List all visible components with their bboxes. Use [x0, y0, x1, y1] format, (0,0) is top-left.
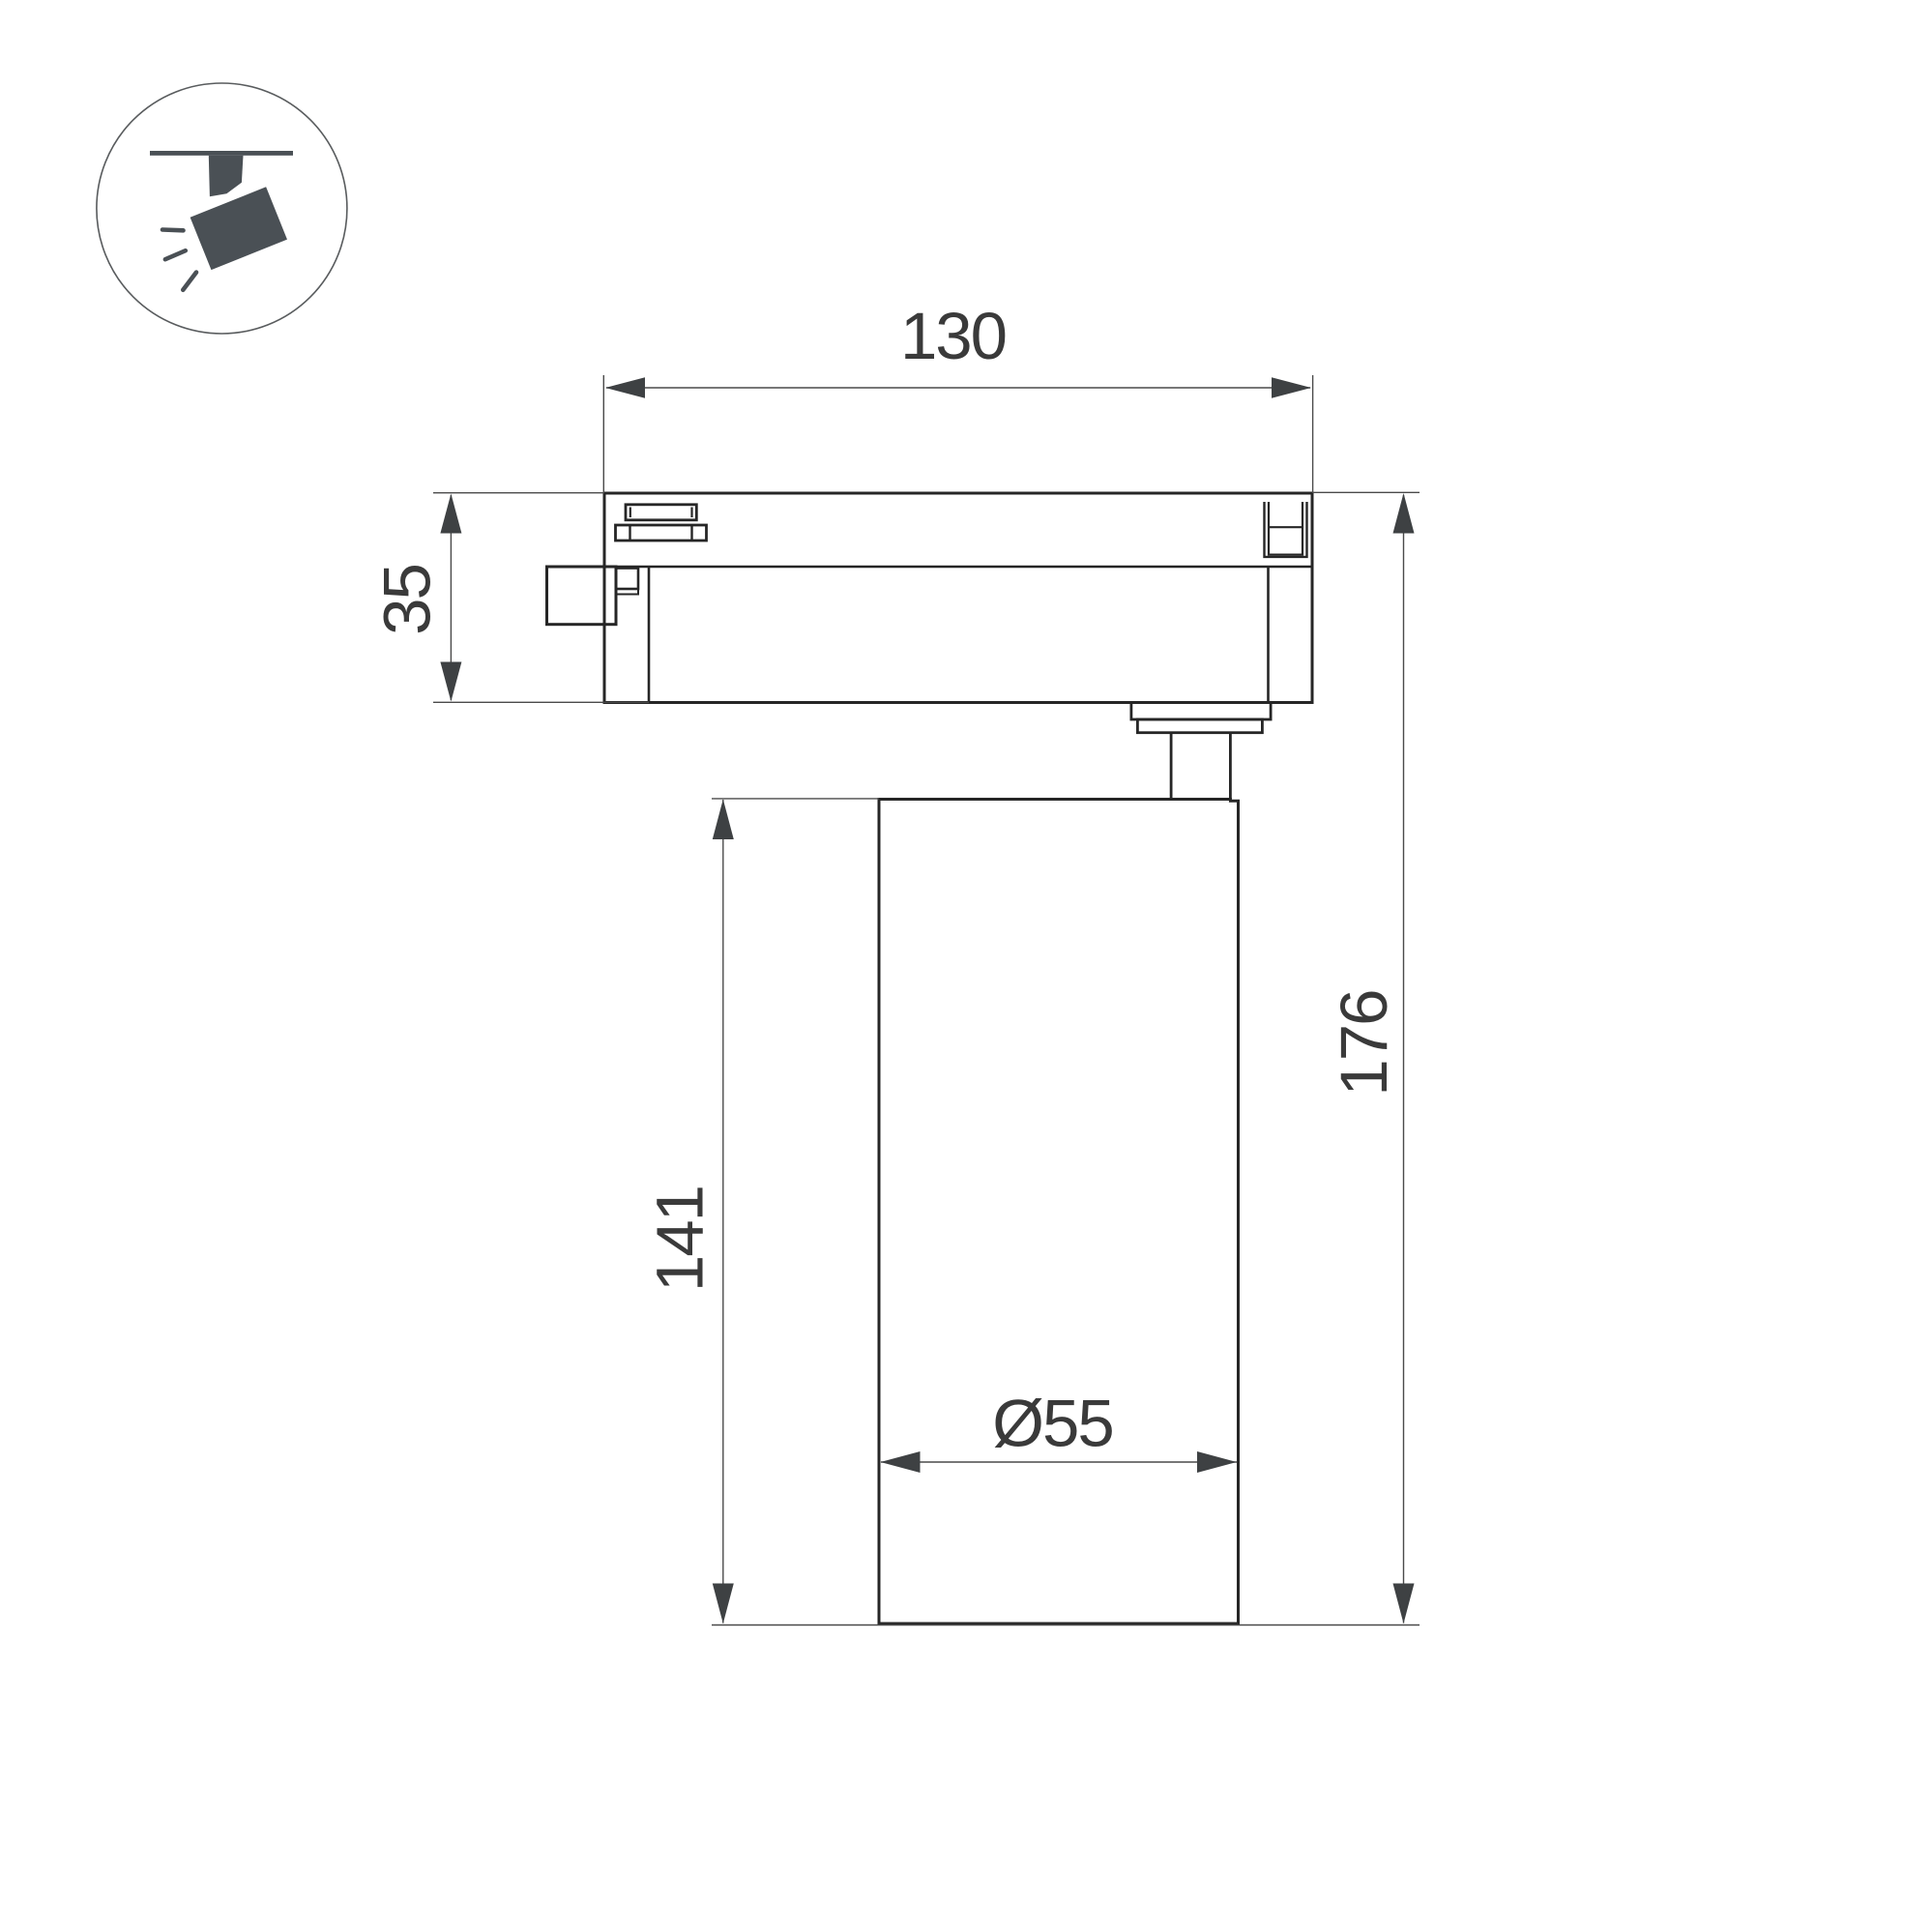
svg-text:130: 130	[900, 299, 1006, 373]
svg-text:Ø55: Ø55	[992, 1387, 1112, 1461]
svg-text:35: 35	[370, 565, 445, 635]
svg-text:176: 176	[1327, 990, 1401, 1096]
svg-text:141: 141	[643, 1186, 717, 1292]
